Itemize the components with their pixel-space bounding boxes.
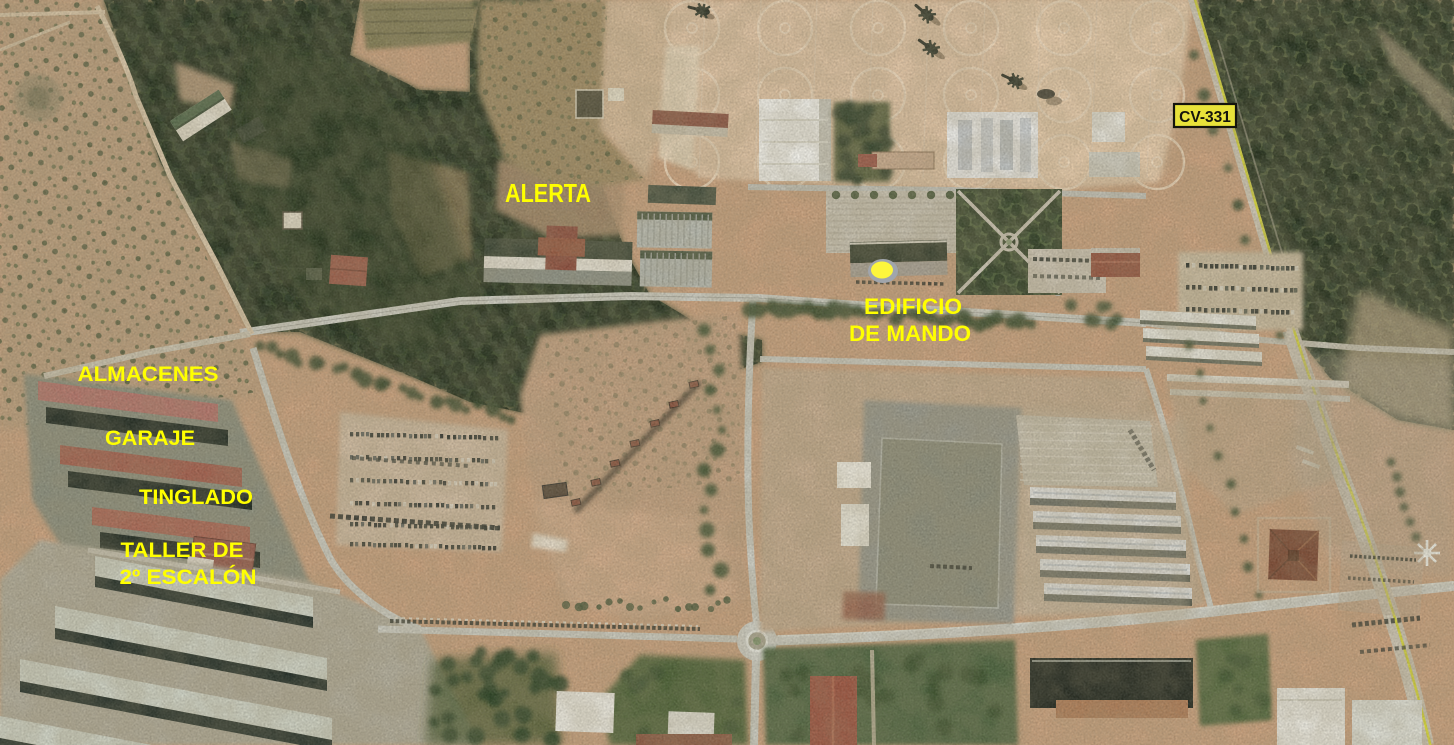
svg-text:ALERTA: ALERTA: [505, 178, 591, 208]
svg-text:DE MANDO: DE MANDO: [849, 321, 971, 346]
svg-text:TALLER DE: TALLER DE: [121, 539, 244, 562]
svg-text:GARAJE: GARAJE: [105, 427, 195, 450]
svg-text:EDIFICIO: EDIFICIO: [864, 294, 962, 319]
svg-text:ALMACENES: ALMACENES: [78, 363, 219, 386]
svg-text:2º ESCALÓN: 2º ESCALÓN: [120, 565, 257, 589]
svg-text:TINGLADO: TINGLADO: [139, 486, 253, 509]
svg-text:CV-331: CV-331: [1179, 109, 1231, 126]
